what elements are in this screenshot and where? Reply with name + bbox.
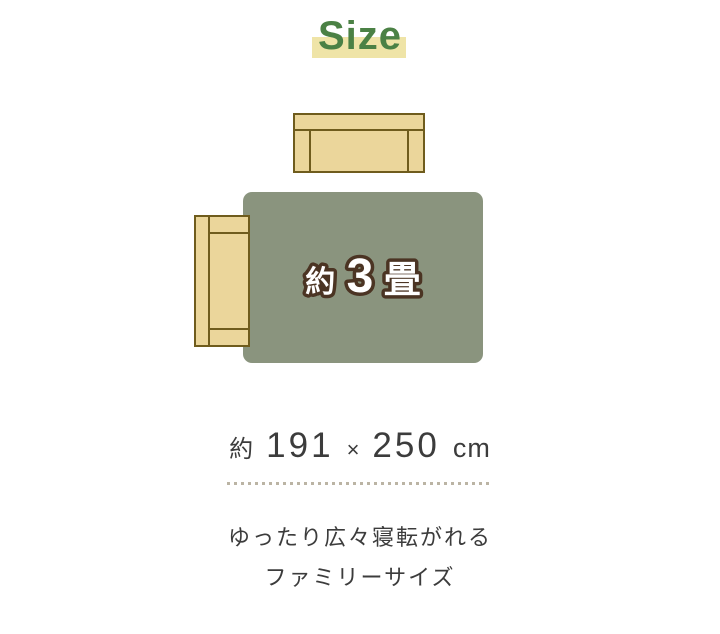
caption-line-2: ファミリーサイズ: [0, 558, 720, 598]
caption-block: ゆったり広々寝転がれる ファミリーサイズ: [0, 518, 720, 598]
sofa-body: [295, 131, 423, 171]
sofa-armrest-bottom: [210, 328, 248, 345]
rug-illustration: 約 3 畳: [243, 192, 483, 363]
sofa-vertical-illustration: [194, 215, 250, 347]
rug-label-number: 3: [347, 250, 374, 303]
sofa-body: [210, 217, 248, 345]
multiply-icon: ×: [347, 437, 360, 463]
rug-label-prefix: 約: [305, 266, 335, 299]
sofa-horizontal-illustration: [293, 113, 425, 173]
dimension-width: 191: [266, 426, 333, 466]
dimension-approx: 約: [229, 429, 253, 464]
dimension-length: 250: [372, 426, 439, 466]
sofa-backrest: [295, 115, 423, 131]
sofa-seat: [311, 131, 407, 171]
size-section: Size 約 3 畳 約 191 × 250 cm: [0, 0, 720, 634]
sofa-armrest-top: [210, 217, 248, 234]
section-title-wrap: Size: [0, 14, 720, 58]
rug-size-label: 約 3 畳: [253, 238, 473, 318]
dotted-divider: [227, 482, 493, 485]
sofa-armrest-left: [295, 131, 311, 171]
dimension-unit: cm: [453, 433, 491, 464]
caption-line-1: ゆったり広々寝転がれる: [0, 518, 720, 558]
sofa-seat: [210, 234, 248, 328]
sofa-backrest: [196, 217, 210, 345]
sofa-armrest-right: [407, 131, 423, 171]
dimension-text: 約 191 × 250 cm: [0, 426, 720, 466]
section-title-text: Size: [318, 14, 402, 58]
section-title: Size: [318, 14, 402, 58]
rug-label-unit: 畳: [384, 259, 421, 300]
svg-text:約 3 畳: 約 3 畳: [305, 250, 421, 303]
